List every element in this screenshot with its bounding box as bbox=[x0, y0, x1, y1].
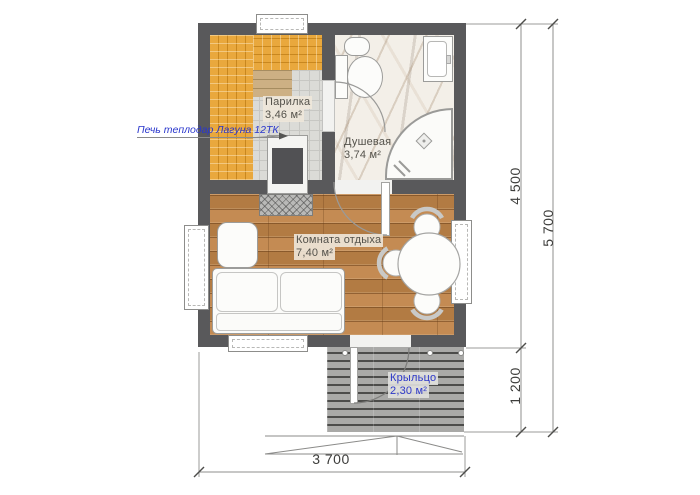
side-table bbox=[217, 222, 258, 268]
door-shower-leaf bbox=[381, 182, 390, 236]
door-entrance-leaf bbox=[350, 347, 358, 404]
faucet-icon bbox=[446, 55, 451, 64]
sofa-cushion-right bbox=[280, 272, 342, 312]
door-sauna-opening bbox=[322, 80, 335, 132]
window-bottom bbox=[228, 335, 308, 352]
door-entrance-opening bbox=[350, 335, 411, 347]
lounge-label: Комната отдыха 7,40 м² bbox=[294, 234, 383, 260]
room-name: Парилка bbox=[263, 96, 312, 109]
vanity-basin bbox=[427, 41, 447, 77]
sauna-bench-left bbox=[210, 35, 253, 180]
room-area: 7,40 м² bbox=[294, 247, 335, 260]
room-area: 3,46 м² bbox=[263, 109, 304, 122]
sofa bbox=[212, 268, 345, 334]
room-area: 2,30 м² bbox=[388, 385, 429, 398]
dim-3700-label: 3 700 bbox=[296, 451, 366, 467]
floor-plan: Печь теплодар Лагуна 12ТК Парилка 3,46 м… bbox=[0, 0, 700, 495]
porch-label: Крыльцо 2,30 м² bbox=[388, 372, 438, 398]
sofa-cushion-left bbox=[216, 272, 278, 312]
window-right bbox=[451, 220, 472, 304]
shower-label: Душевая 3,74 м² bbox=[344, 136, 391, 162]
room-name: Комната отдыха bbox=[294, 234, 383, 247]
interior-wall-lounge bbox=[210, 180, 454, 194]
sofa-seat bbox=[216, 313, 342, 331]
window-frame bbox=[232, 339, 304, 348]
sauna-bench-top bbox=[253, 35, 322, 70]
dim-1200-label: 1 200 bbox=[507, 351, 523, 421]
dim-4500-label: 4 500 bbox=[507, 151, 523, 221]
window-frame bbox=[455, 224, 468, 300]
stove-label: Печь теплодар Лагуна 12ТК bbox=[137, 124, 279, 138]
hearth-mat bbox=[259, 194, 313, 216]
room-name: Крыльцо bbox=[388, 372, 438, 385]
window-frame bbox=[260, 18, 304, 30]
room-name: Душевая bbox=[344, 136, 391, 148]
sauna-bench-step bbox=[253, 70, 292, 97]
toilet-bowl bbox=[347, 56, 383, 98]
wall-sink bbox=[344, 37, 370, 56]
window-top bbox=[256, 14, 308, 34]
room-area: 3,74 м² bbox=[344, 149, 381, 161]
vanity-sink bbox=[423, 36, 453, 82]
window-frame bbox=[188, 229, 205, 306]
dim-5700-label: 5 700 bbox=[540, 193, 556, 263]
stove bbox=[272, 148, 303, 184]
sauna-label: Парилка 3,46 м² bbox=[263, 96, 312, 122]
window-left bbox=[184, 225, 209, 310]
